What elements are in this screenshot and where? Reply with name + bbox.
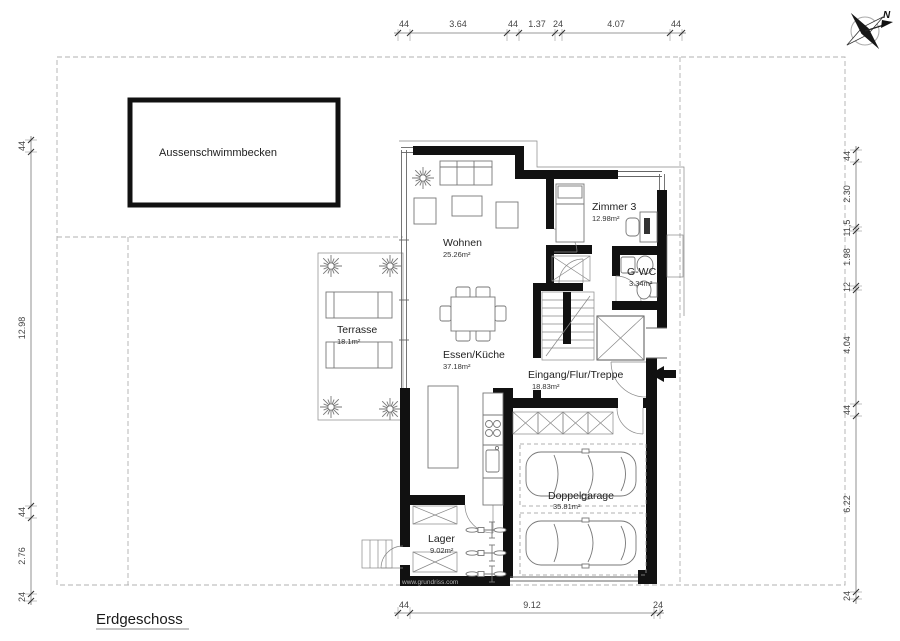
plan-title: Erdgeschoss [96, 611, 189, 629]
dim-top-0: 44 [399, 19, 409, 29]
car-2 [526, 518, 636, 568]
storage-area: 9.02m² [430, 546, 454, 555]
bed [556, 184, 584, 242]
garage-label: Doppelgarage [548, 490, 614, 502]
dim-top-6: 44 [671, 19, 681, 29]
dim-right-3: 1.98 [842, 248, 852, 266]
coffee-table [452, 196, 482, 216]
bedroom-area: 12.98m² [592, 214, 620, 223]
corridor-closet [552, 256, 590, 281]
dim-left-4: 24 [17, 592, 27, 602]
dimension-top: 44 3.64 44 1.37 24 4.07 44 [394, 19, 686, 41]
kitchen-island [428, 386, 458, 468]
bike-2 [466, 545, 506, 561]
dim-top-5: 4.07 [607, 19, 625, 29]
dimension-bottom: 44 9.12 24 [394, 600, 664, 619]
terrace: Terrasse 18.1m² [318, 253, 403, 420]
kitchen-sink [486, 446, 499, 472]
dim-top-3: 1.37 [528, 19, 546, 29]
floor-plan-page: Aussenschwimmbecken Terrasse 18.1m² [0, 0, 900, 641]
stairs [542, 292, 594, 360]
plant-icon [379, 398, 401, 420]
entrance-area: 18.83m² [532, 382, 560, 391]
plant-icon [320, 396, 342, 418]
dim-right-1: 2.30 [842, 185, 852, 203]
north-label: N [883, 10, 891, 21]
kitchen-counter [483, 393, 503, 505]
dim-right-6: 44 [842, 405, 852, 415]
kitchen-area: 37.18m² [443, 362, 471, 371]
living-room-furniture [412, 161, 518, 228]
dim-right-7: 6.22 [842, 495, 852, 513]
floor-plan-canvas: Aussenschwimmbecken Terrasse 18.1m² [0, 0, 900, 641]
lounger-1 [326, 292, 392, 318]
garage-area: 35.81m² [553, 502, 581, 511]
dim-bottom-0: 44 [399, 600, 409, 610]
dim-right-5: 4.04 [842, 336, 852, 354]
storage-label: Lager [428, 533, 455, 545]
living-room-label: Wohnen [443, 237, 482, 249]
storage-shelf-2 [413, 552, 457, 572]
north-compass-icon: N [833, 0, 898, 63]
living-room-area: 25.26m² [443, 250, 471, 259]
desk-monitor [644, 218, 650, 234]
dim-right-8: 24 [842, 591, 852, 601]
dim-bottom-1: 9.12 [523, 600, 541, 610]
outside-steps [362, 540, 392, 568]
garage-cabinets [513, 412, 613, 434]
dim-right-2: 11,5 [842, 220, 852, 237]
plant-icon [320, 255, 342, 277]
kitchen [428, 386, 503, 505]
dining-set [440, 287, 506, 341]
armchair-1 [414, 198, 436, 224]
wc-area: 3.34m² [629, 279, 653, 288]
watermark-text: www.grundriss.com [401, 579, 458, 586]
wc-label: G-WC [627, 266, 657, 278]
dim-left-2: 44 [17, 507, 27, 517]
armchair-2 [496, 202, 518, 228]
dim-right-0: 44 [842, 151, 852, 161]
terrace-label: Terrasse [337, 324, 377, 336]
window-sill [667, 235, 683, 277]
pool: Aussenschwimmbecken [130, 100, 338, 205]
dim-top-4: 24 [553, 19, 563, 29]
sofa [440, 161, 492, 185]
bedroom-furniture [556, 184, 657, 242]
plant-icon [412, 167, 434, 189]
dim-left-0: 44 [17, 141, 27, 151]
entrance-label: Eingang/Flur/Treppe [528, 369, 623, 381]
dim-left-1: 12.98 [17, 317, 27, 340]
dim-right-4: 12 [842, 282, 852, 292]
desk-chair [626, 218, 639, 236]
bike-1 [466, 522, 506, 538]
dim-bottom-2: 24 [653, 600, 663, 610]
plant-icon [379, 255, 401, 277]
kitchen-label: Essen/Küche [443, 349, 505, 361]
dim-left-3: 2.76 [17, 547, 27, 565]
dimension-left: 44 12.98 44 2.76 24 [17, 136, 37, 605]
terrace-area: 18.1m² [337, 337, 361, 346]
pool-label: Aussenschwimmbecken [159, 147, 277, 159]
bedroom-label: Zimmer 3 [592, 201, 636, 213]
hall-wardrobe [597, 316, 644, 360]
storage-shelf-1 [413, 506, 457, 524]
dim-top-1: 3.64 [449, 19, 467, 29]
dim-top-2: 44 [508, 19, 518, 29]
plan-title-text: Erdgeschoss [96, 611, 183, 628]
storage-room [413, 506, 506, 582]
dining-table [451, 297, 495, 331]
